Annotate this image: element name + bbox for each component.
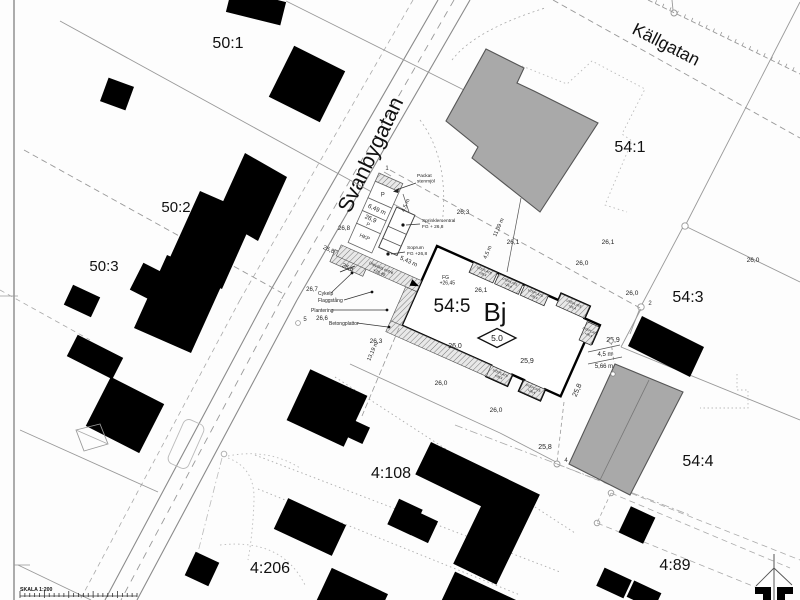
svg-text:26,1: 26,1	[475, 287, 488, 294]
svg-text:+26,45: +26,45	[440, 280, 456, 286]
svg-text:25,8: 25,8	[538, 444, 552, 451]
svg-text:54:3: 54:3	[672, 289, 703, 306]
svg-text:54:5: 54:5	[434, 296, 471, 317]
svg-text:54:4: 54:4	[682, 453, 713, 470]
svg-text:26,1: 26,1	[602, 239, 615, 246]
svg-text:26,0: 26,0	[448, 343, 462, 350]
svg-text:25,9: 25,9	[520, 358, 534, 365]
svg-text:26,0: 26,0	[747, 257, 760, 264]
svg-text:26,6: 26,6	[316, 316, 328, 322]
svg-text:Plantering: Plantering	[311, 308, 334, 314]
svg-text:50:1: 50:1	[212, 35, 243, 52]
svg-text:50:3: 50:3	[89, 258, 118, 275]
svg-text:26,0: 26,0	[435, 380, 448, 387]
svg-text:Soprum: Soprum	[407, 245, 424, 251]
svg-text:Flaggstång: Flaggstång	[318, 297, 343, 304]
svg-text:Cykelp: Cykelp	[318, 291, 334, 297]
svg-text:FG +26,8: FG +26,8	[407, 251, 427, 257]
svg-text:SKALA 1:200: SKALA 1:200	[20, 587, 52, 593]
svg-text:26,8: 26,8	[338, 225, 351, 232]
svg-text:5,66 m: 5,66 m	[595, 364, 613, 370]
svg-text:Betongplattor: Betongplattor	[329, 321, 359, 327]
svg-text:5.0: 5.0	[491, 333, 503, 343]
svg-text:50:2: 50:2	[161, 199, 190, 216]
svg-text:stenmjöl: stenmjöl	[417, 179, 435, 185]
svg-text:Bj: Bj	[483, 297, 506, 327]
svg-text:4:108: 4:108	[371, 465, 411, 482]
svg-text:4:89: 4:89	[659, 557, 690, 574]
svg-text:54:1: 54:1	[614, 139, 645, 156]
svg-text:P: P	[381, 193, 385, 199]
svg-text:26,0: 26,0	[576, 260, 589, 267]
svg-text:26,0: 26,0	[490, 407, 503, 414]
svg-text:26,0: 26,0	[626, 290, 639, 297]
svg-text:26,3: 26,3	[457, 209, 470, 216]
svg-text:Packat: Packat	[417, 173, 432, 179]
svg-text:26,7: 26,7	[306, 287, 318, 293]
svg-text:Sprinklercentral: Sprinklercentral	[422, 218, 455, 224]
svg-text:FG + 26,8: FG + 26,8	[422, 224, 444, 230]
svg-text:4:206: 4:206	[250, 560, 290, 577]
svg-text:4,5 m: 4,5 m	[597, 352, 612, 358]
